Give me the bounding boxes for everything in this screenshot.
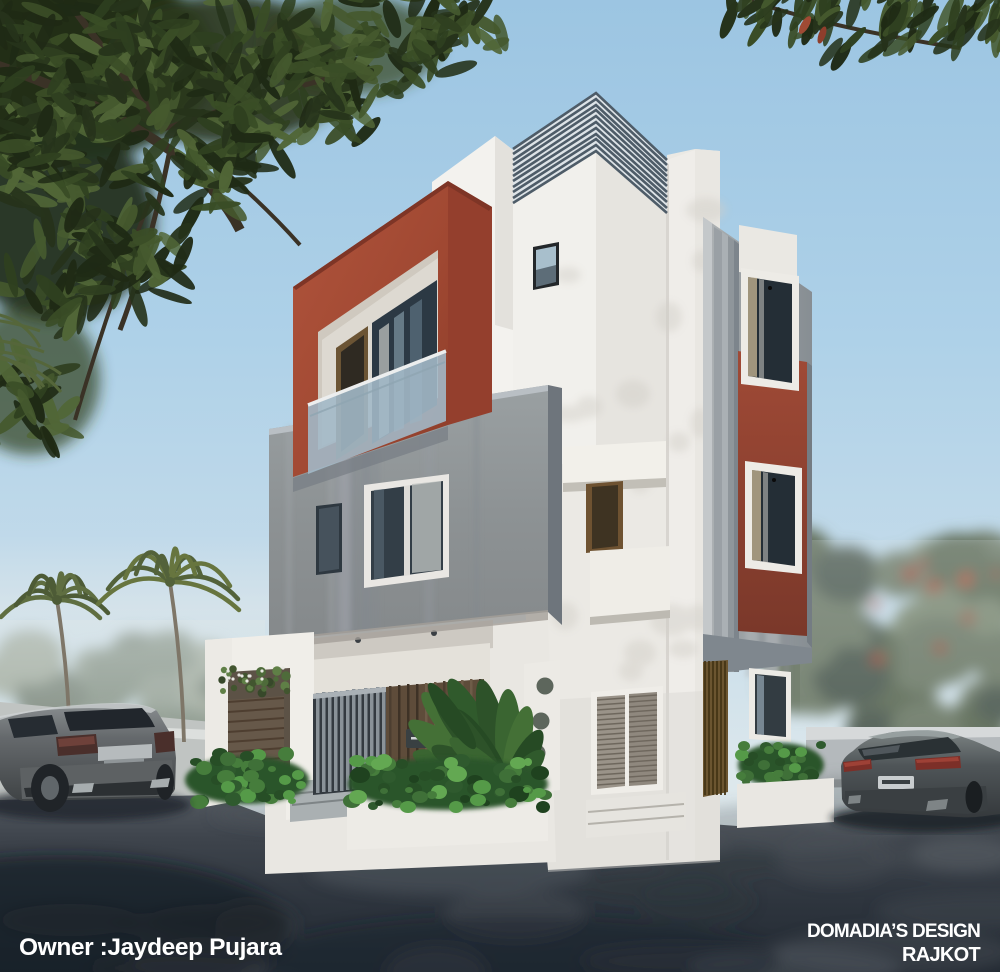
svg-text:RAJKOT: RAJKOT (902, 944, 981, 966)
svg-text:DOMADIA’S DESIGN: DOMADIA’S DESIGN (807, 921, 980, 942)
svg-text:Owner :Jaydeep Pujara: Owner :Jaydeep Pujara (19, 934, 282, 961)
